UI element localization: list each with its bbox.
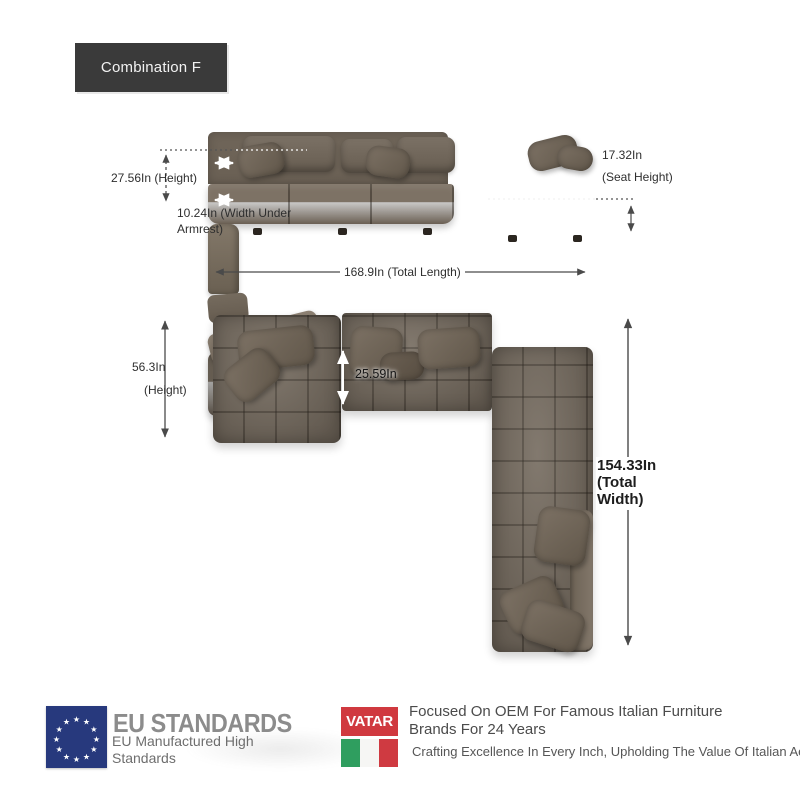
svg-text:★: ★ xyxy=(73,715,80,724)
svg-text:★: ★ xyxy=(56,745,63,754)
sofa-foot xyxy=(423,228,432,235)
combination-badge-label: Combination F xyxy=(101,59,201,76)
svg-text:★: ★ xyxy=(56,725,63,734)
front-seat-height-label: (Seat Height) xyxy=(602,170,673,186)
eu-flag-stars: ★★★★★★★★★★★★ xyxy=(46,706,107,768)
svg-text:★: ★ xyxy=(93,735,100,744)
italy-flag-red-stripe xyxy=(379,739,398,767)
front-total-length-label: 168.9In (Total Length) xyxy=(340,265,465,281)
oem-headline: Focused On OEM For Famous Italian Furnit… xyxy=(409,703,735,739)
svg-text:★: ★ xyxy=(63,718,70,727)
svg-text:★: ★ xyxy=(73,755,80,764)
italy-flag-icon xyxy=(341,739,398,767)
sofa-foot xyxy=(573,235,582,242)
eu-flag-icon: ★★★★★★★★★★★★ xyxy=(46,706,107,768)
eu-standards-subtitle: EU Manufactured High Standards xyxy=(112,733,282,766)
throw-pillow xyxy=(555,143,595,173)
italy-flag-green-stripe xyxy=(341,739,360,767)
product-dimension-diagram: Combination F xyxy=(0,0,800,800)
front-seat-height-value: 17.32In xyxy=(602,148,642,164)
combination-badge: Combination F xyxy=(75,43,227,92)
italy-flag-white-stripe xyxy=(360,739,379,767)
svg-text:★: ★ xyxy=(53,735,60,744)
brand-tagline: Crafting Excellence In Every Inch, Uphol… xyxy=(412,744,800,759)
sofa-foot xyxy=(508,235,517,242)
svg-text:★: ★ xyxy=(83,752,90,761)
plan-pillow xyxy=(417,326,482,370)
plan-total-width-caption-1: (Total xyxy=(597,475,656,492)
sofa-top-view xyxy=(208,310,593,655)
plan-height-value: 56.3In xyxy=(132,360,165,376)
plan-seat-depth-label: 25.59In xyxy=(355,367,397,381)
front-armrest-width-label: 10.24In (Width Under Armrest) xyxy=(177,206,309,237)
svg-text:★: ★ xyxy=(90,725,97,734)
plan-total-width-label: 154.33In (Total Width) xyxy=(596,457,658,510)
svg-text:★: ★ xyxy=(90,745,97,754)
svg-text:★: ★ xyxy=(83,718,90,727)
front-height-label: 27.56In (Height) xyxy=(111,171,197,187)
plan-height-label: (Height) xyxy=(144,383,187,399)
vatar-logo-text: VATAR xyxy=(346,713,393,730)
vatar-logo: VATAR xyxy=(341,707,398,736)
sofa-foot xyxy=(338,228,347,235)
plan-pillow xyxy=(532,505,591,568)
plan-total-width-value: 154.33In xyxy=(597,458,656,475)
svg-text:★: ★ xyxy=(63,752,70,761)
plan-total-width-caption-2: Width) xyxy=(597,492,656,509)
